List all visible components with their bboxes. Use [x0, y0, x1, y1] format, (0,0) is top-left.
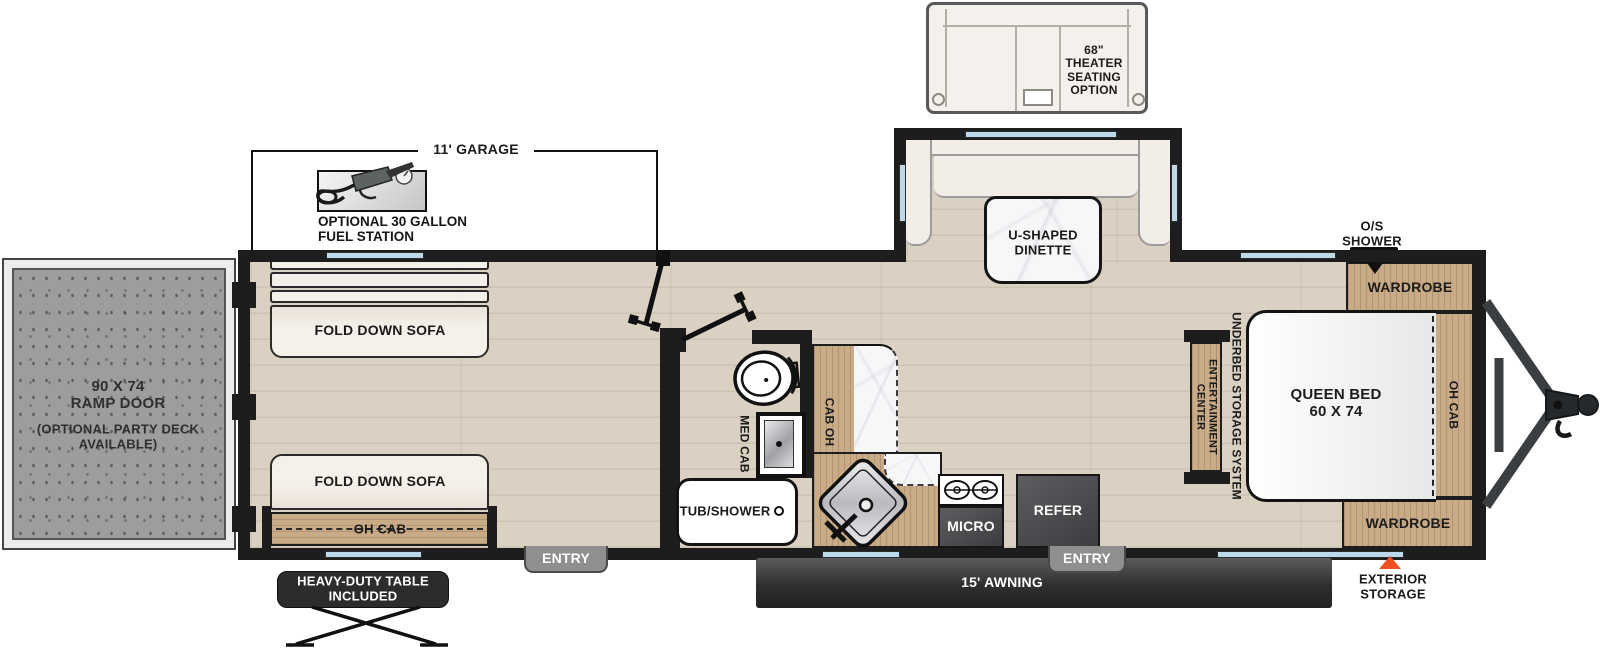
med-cab-label: MED CAB	[737, 415, 750, 472]
fold-down-sofa-top	[270, 272, 489, 288]
cab-oh-label: CAB OH	[822, 398, 835, 447]
theater-cupholder-tray	[1023, 89, 1053, 106]
fuel-station-label: OPTIONAL 30 GALLON FUEL STATION	[318, 215, 467, 245]
refer-label: REFER	[1034, 503, 1082, 519]
os-shower-label: O/S SHOWER	[1342, 219, 1402, 248]
garage-dimension-label: 11' GARAGE	[433, 142, 518, 158]
trailer-hitch-icon	[1486, 302, 1598, 506]
window	[1240, 252, 1336, 259]
table-legs-icon	[286, 607, 448, 645]
oh-cab-garage-label: OH CAB	[354, 523, 406, 538]
window	[1171, 164, 1178, 222]
window	[965, 131, 1117, 138]
tub-drain	[774, 506, 784, 516]
fold-down-sofa-top-label: FOLD DOWN SOFA	[314, 323, 445, 339]
wardrobe-bottom-label: WARDROBE	[1366, 516, 1451, 532]
queen-bed-label: QUEEN BED 60 X 74	[1291, 387, 1382, 421]
bed-head-dash	[1432, 316, 1434, 496]
exterior-storage-marker	[1379, 556, 1401, 569]
entry-main-label: ENTRY	[1063, 551, 1111, 567]
window	[1217, 551, 1404, 558]
fuel-station-icon	[317, 170, 427, 212]
rear-wall	[238, 250, 250, 560]
vanity-drain	[776, 441, 782, 447]
theater-cupholder	[1132, 93, 1145, 106]
entertainment-center-label: ENTERTAINMENT CENTER	[1194, 332, 1219, 482]
front-wall	[1474, 250, 1486, 560]
underbed-storage-label: UNDERBED STORAGE SYSTEM	[1229, 312, 1242, 500]
exterior-storage-label: EXTERIOR STORAGE	[1359, 572, 1427, 601]
theater-seating-label: 68" THEATER SEATING OPTION	[1065, 44, 1122, 98]
awning	[756, 558, 1332, 608]
fold-down-sofa-bottom-label: FOLD DOWN SOFA	[314, 474, 445, 490]
garage-dimension-line	[534, 150, 658, 152]
dinette-bench-left	[906, 140, 932, 246]
kitchen-counter-top	[884, 454, 940, 486]
wardrobe-top-label: WARDROBE	[1368, 280, 1453, 296]
window	[822, 551, 900, 558]
window	[325, 551, 422, 558]
theater-cupholder	[932, 93, 945, 106]
window	[326, 252, 424, 259]
oh-cab-bedroom-label: OH CAB	[1446, 381, 1459, 430]
table-included-label: HEAVY-DUTY TABLE INCLUDED	[297, 574, 429, 603]
garage-dimension-line	[252, 150, 418, 152]
os-shower-nozzle	[1367, 263, 1383, 274]
dinette-label: U-SHAPED DINETTE	[1008, 228, 1078, 257]
cabinet-side	[488, 506, 497, 548]
garage-dimension-tick	[251, 150, 253, 250]
dinette-bench-back	[906, 140, 1170, 156]
bathroom-wall	[752, 330, 812, 344]
rv-floorplan: 68" THEATER SEATING OPTION 11' GARAGE OP…	[0, 0, 1600, 649]
dinette-bench-right	[1138, 140, 1170, 246]
ramp-door-option-label: (OPTIONAL PARTY DECK AVAILABLE)	[37, 422, 199, 451]
garage-dimension-tick	[656, 150, 658, 250]
dinette-bench-seat	[934, 156, 1138, 198]
window	[899, 164, 906, 222]
micro-label: MICRO	[947, 519, 995, 535]
ramp-door-label: 90 X 74 RAMP DOOR	[71, 379, 166, 413]
cooktop	[938, 474, 1004, 506]
fold-down-sofa-top	[270, 290, 489, 303]
awning-label: 15' AWNING	[961, 575, 1043, 591]
entry-garage-label: ENTRY	[542, 551, 590, 567]
tub-shower-label: TUB/SHOWER	[680, 505, 771, 520]
